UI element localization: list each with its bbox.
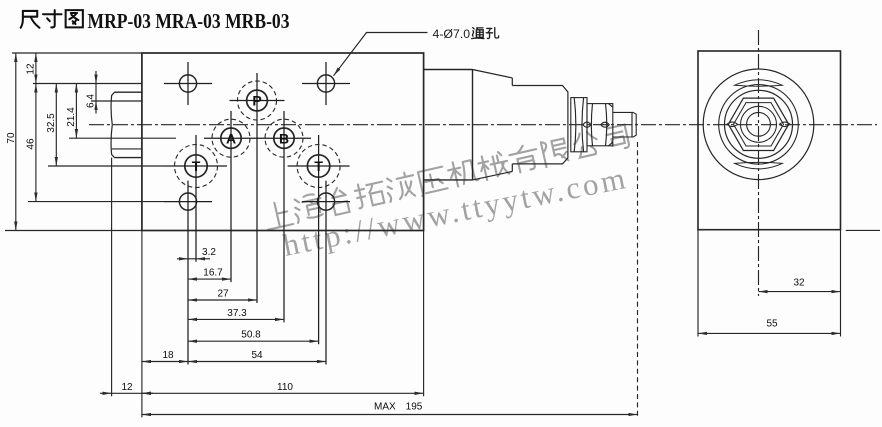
svg-text:18: 18	[162, 350, 174, 361]
svg-text:T: T	[314, 158, 323, 174]
svg-text:32: 32	[793, 278, 805, 289]
svg-text:B: B	[279, 130, 289, 146]
svg-text:110: 110	[277, 382, 293, 393]
svg-text:54: 54	[251, 350, 263, 361]
svg-text:16.7: 16.7	[203, 268, 223, 279]
svg-text:32.5: 32.5	[46, 113, 57, 133]
svg-text:6.4: 6.4	[86, 94, 97, 108]
svg-text:21.4: 21.4	[66, 107, 77, 127]
svg-text:12: 12	[26, 63, 37, 75]
svg-text:T: T	[192, 158, 201, 174]
svg-text:12: 12	[121, 382, 133, 393]
svg-text:MRP-03 MRA-03 MRB-03: MRP-03 MRA-03 MRB-03	[88, 9, 290, 33]
svg-text:A: A	[226, 130, 236, 146]
svg-text:46: 46	[26, 138, 37, 150]
svg-text:3.2: 3.2	[202, 247, 216, 258]
svg-text:P: P	[252, 93, 261, 109]
svg-text:37.3: 37.3	[227, 308, 247, 319]
svg-text:4-Ø7.0: 4-Ø7.0	[433, 27, 471, 41]
svg-text:70: 70	[6, 132, 17, 144]
svg-text:55: 55	[766, 319, 778, 330]
svg-text:27: 27	[217, 289, 229, 300]
svg-text:50.8: 50.8	[241, 330, 261, 341]
